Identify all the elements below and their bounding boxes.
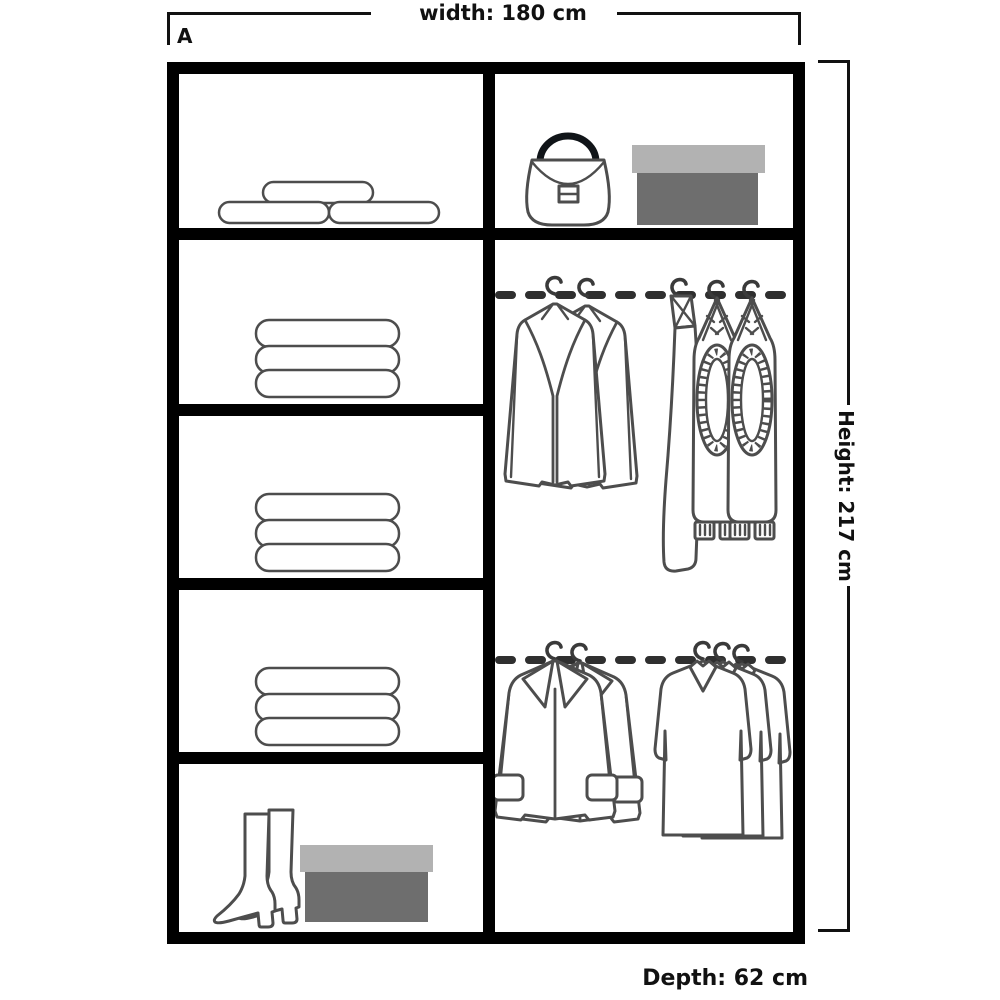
- depth-dimension-label: Depth: 62 cm: [642, 966, 808, 991]
- shirts-on-hangers-icon: [655, 643, 790, 838]
- left-shelf-divider-4: [179, 752, 483, 764]
- pillow-rolls-icon: [179, 74, 483, 228]
- width-dim-line-left: [167, 12, 371, 15]
- left-shelf-divider-1: [179, 228, 483, 240]
- width-dim-line-right: [617, 12, 801, 15]
- variant-label: A: [177, 24, 192, 48]
- height-dim-line-bottom: [847, 586, 850, 932]
- height-dim-line-top: [847, 60, 850, 405]
- left-shelf-divider-3: [179, 578, 483, 590]
- shoe-box-icon: [632, 145, 765, 173]
- width-dim-tick-left: [167, 12, 170, 45]
- handbag-and-shoebox: [495, 74, 793, 228]
- folded-linen-stack-icon: [179, 240, 483, 404]
- center-divider: [483, 74, 495, 932]
- trousers-on-hangers-icon: [663, 280, 776, 572]
- jackets-on-hangers-icon: [505, 278, 637, 488]
- folded-linen-stack-icon: [179, 416, 483, 578]
- wardrobe-frame: [167, 62, 805, 944]
- left-shelf-divider-2: [179, 404, 483, 416]
- height-dim-corner-top: [818, 60, 850, 63]
- height-dimension-label: Height: 217 cm: [834, 410, 858, 582]
- handbag-icon: [527, 136, 610, 225]
- hanging-area: [495, 240, 793, 932]
- right-shelf-divider: [495, 228, 793, 240]
- coats-on-hangers-icon: [495, 643, 642, 822]
- width-dim-tick-right: [798, 12, 801, 45]
- width-dimension-label: width: 180 cm: [419, 1, 587, 25]
- shoe-box-icon: [300, 845, 433, 872]
- wardrobe-dimension-diagram: width: 180 cm A Height: 217 cm Depth: 62…: [0, 0, 1000, 1000]
- boots-icon: [214, 810, 299, 927]
- folded-linen-stack-icon: [179, 590, 483, 752]
- height-dim-corner-bottom: [818, 929, 850, 932]
- boots-and-shoebox: [179, 764, 483, 932]
